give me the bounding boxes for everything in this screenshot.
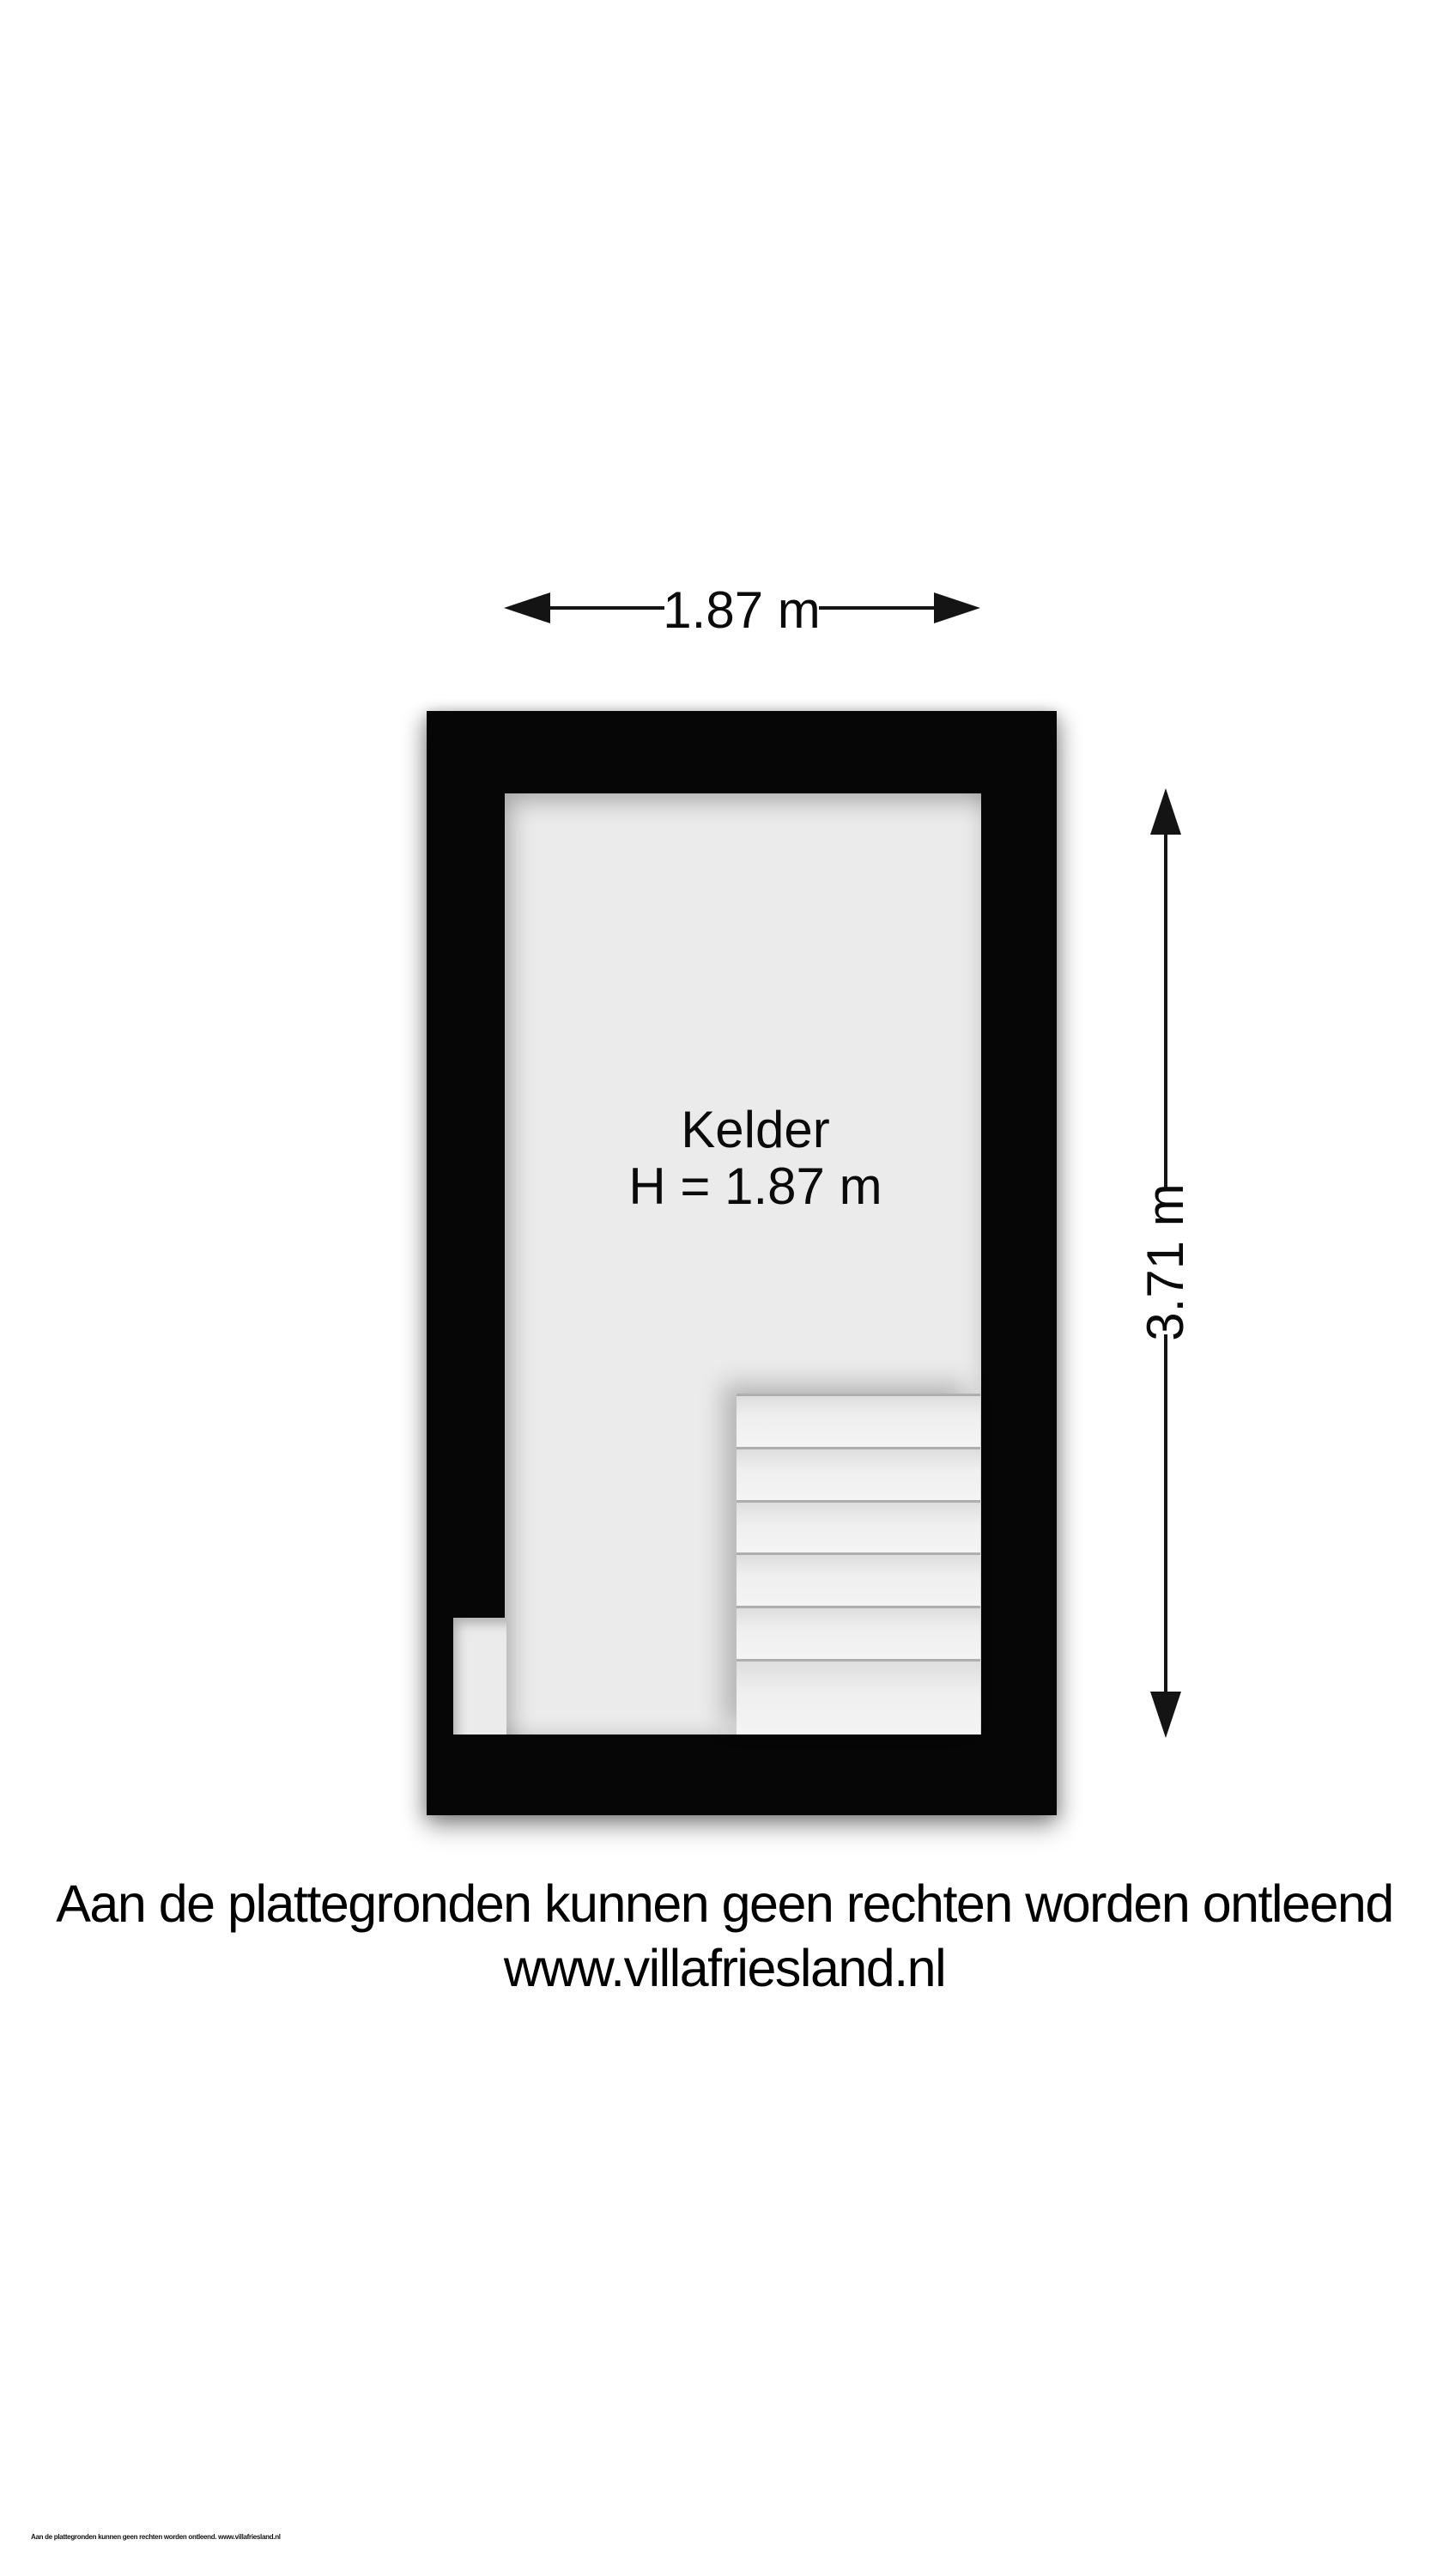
arrowhead-left-icon [504, 592, 550, 623]
stair-step [737, 1606, 980, 1659]
floor-notch [453, 1618, 506, 1735]
stair-step [737, 1447, 980, 1500]
width-dimension-line-right [819, 606, 936, 610]
footer-website: www.villafriesland.nl [0, 1936, 1449, 2001]
fineprint: Aan de plattegronden kunnen geen rechten… [31, 2533, 281, 2541]
room-label: Kelder H = 1.87 m [628, 1102, 882, 1215]
stair-step [737, 1659, 980, 1735]
height-dimension-label: 3.71 m [1140, 1183, 1191, 1340]
room-height-label: H = 1.87 m [628, 1158, 882, 1215]
footer-disclaimer: Aan de plattegronden kunnen geen rechten… [0, 1872, 1449, 1936]
height-dimension-line-bottom [1164, 1334, 1167, 1692]
stair-step [737, 1552, 980, 1606]
arrowhead-right-icon [934, 592, 980, 623]
staircase [737, 1394, 980, 1735]
stair-step [737, 1394, 980, 1447]
arrowhead-down-icon [1150, 1692, 1181, 1738]
wall-outline [427, 711, 1057, 1815]
floorplan-page: 1.87 m Kelder H = 1.87 m 3.71 m Aan de p… [0, 0, 1449, 2576]
height-dimension-line-top [1164, 833, 1167, 1190]
footer: Aan de plattegronden kunnen geen rechten… [0, 1872, 1449, 2001]
width-dimension-label: 1.87 m [663, 585, 820, 636]
arrowhead-up-icon [1150, 788, 1181, 835]
width-dimension-line-left [548, 606, 664, 610]
room-name: Kelder [628, 1102, 882, 1158]
stair-step [737, 1500, 980, 1553]
